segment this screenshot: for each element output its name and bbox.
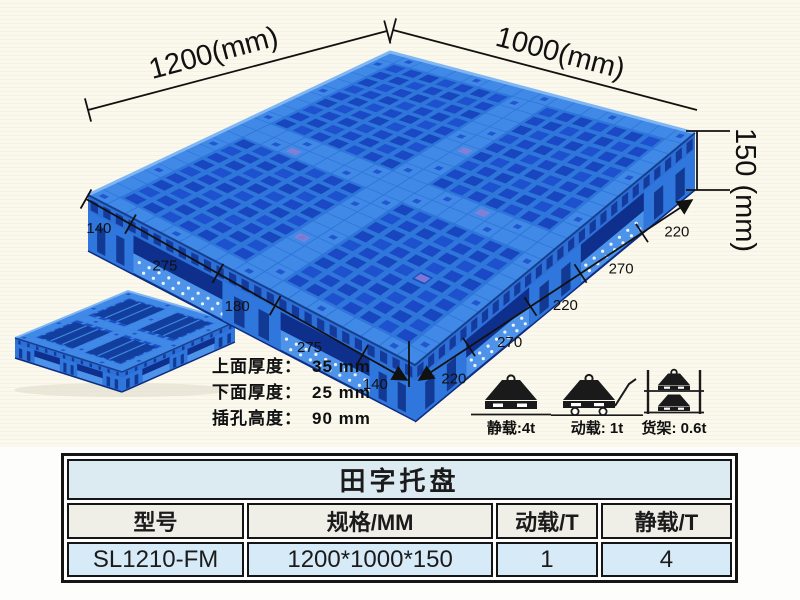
- rack-load-label: 货架: 0.6t: [636, 417, 712, 438]
- table-row: SL1210-FM 1200*1000*150 1 4: [67, 542, 732, 577]
- spec-value: 35 mm: [312, 357, 371, 376]
- spec-bottom-thickness: 下面厚度：25 mm: [212, 380, 371, 406]
- spec-top-thickness: 上面厚度：35 mm: [212, 354, 371, 380]
- dimension-chain-label: 270: [497, 334, 522, 351]
- spec-label: 上面厚度：: [212, 357, 302, 376]
- table-title: 田字托盘: [67, 459, 732, 500]
- dynamic-load-icon: [551, 372, 643, 416]
- spec-value: 90 mm: [312, 409, 371, 428]
- dimension-chain-label: 220: [441, 371, 466, 388]
- cell-dynamic-load: 1: [496, 542, 598, 577]
- pallet-product-sheet: { "illustration": { "length_label": "120…: [0, 0, 800, 600]
- dimension-chain-label: 140: [86, 220, 111, 237]
- height-dimension-label: 150 (mm): [729, 128, 761, 252]
- dimension-chain-label: 220: [553, 297, 578, 314]
- thickness-specs: 上面厚度：35 mm 下面厚度：25 mm 插孔高度：90 mm: [212, 354, 371, 432]
- static-load-block: 静载:4t: [468, 372, 554, 438]
- col-header-dynamic-load: 动载/T: [496, 503, 598, 539]
- static-load-label: 静载:4t: [468, 417, 554, 438]
- dimension-chain-label: 220: [664, 224, 689, 241]
- dynamic-load-label: 动载: 1t: [550, 417, 644, 438]
- rack-load-icon: [638, 368, 710, 416]
- rack-load-block: 货架: 0.6t: [636, 368, 712, 438]
- spec-label: 插孔高度：: [212, 409, 302, 428]
- dimension-chain-label: 270: [609, 260, 634, 277]
- static-load-icon: [469, 372, 553, 416]
- spec-label: 下面厚度：: [212, 383, 302, 402]
- cell-static-load: 4: [601, 542, 732, 577]
- spec-fork-height: 插孔高度：90 mm: [212, 406, 371, 432]
- dimension-chain-label: 180: [225, 298, 250, 315]
- dimension-chain-label: 275: [152, 257, 177, 274]
- col-header-spec: 规格/MM: [247, 503, 493, 539]
- col-header-model: 型号: [67, 503, 244, 539]
- cell-spec: 1200*1000*150: [247, 542, 493, 577]
- product-spec-table: 田字托盘 型号 规格/MM 动载/T 静载/T SL1210-FM 1200*1…: [61, 453, 738, 583]
- col-header-static-load: 静载/T: [601, 503, 732, 539]
- table-header-row: 型号 规格/MM 动载/T 静载/T: [67, 503, 732, 539]
- width-dimension-label: 1000(mm): [492, 21, 628, 86]
- spec-value: 25 mm: [312, 383, 371, 402]
- dynamic-load-block: 动载: 1t: [550, 372, 644, 438]
- cell-model: SL1210-FM: [67, 542, 244, 577]
